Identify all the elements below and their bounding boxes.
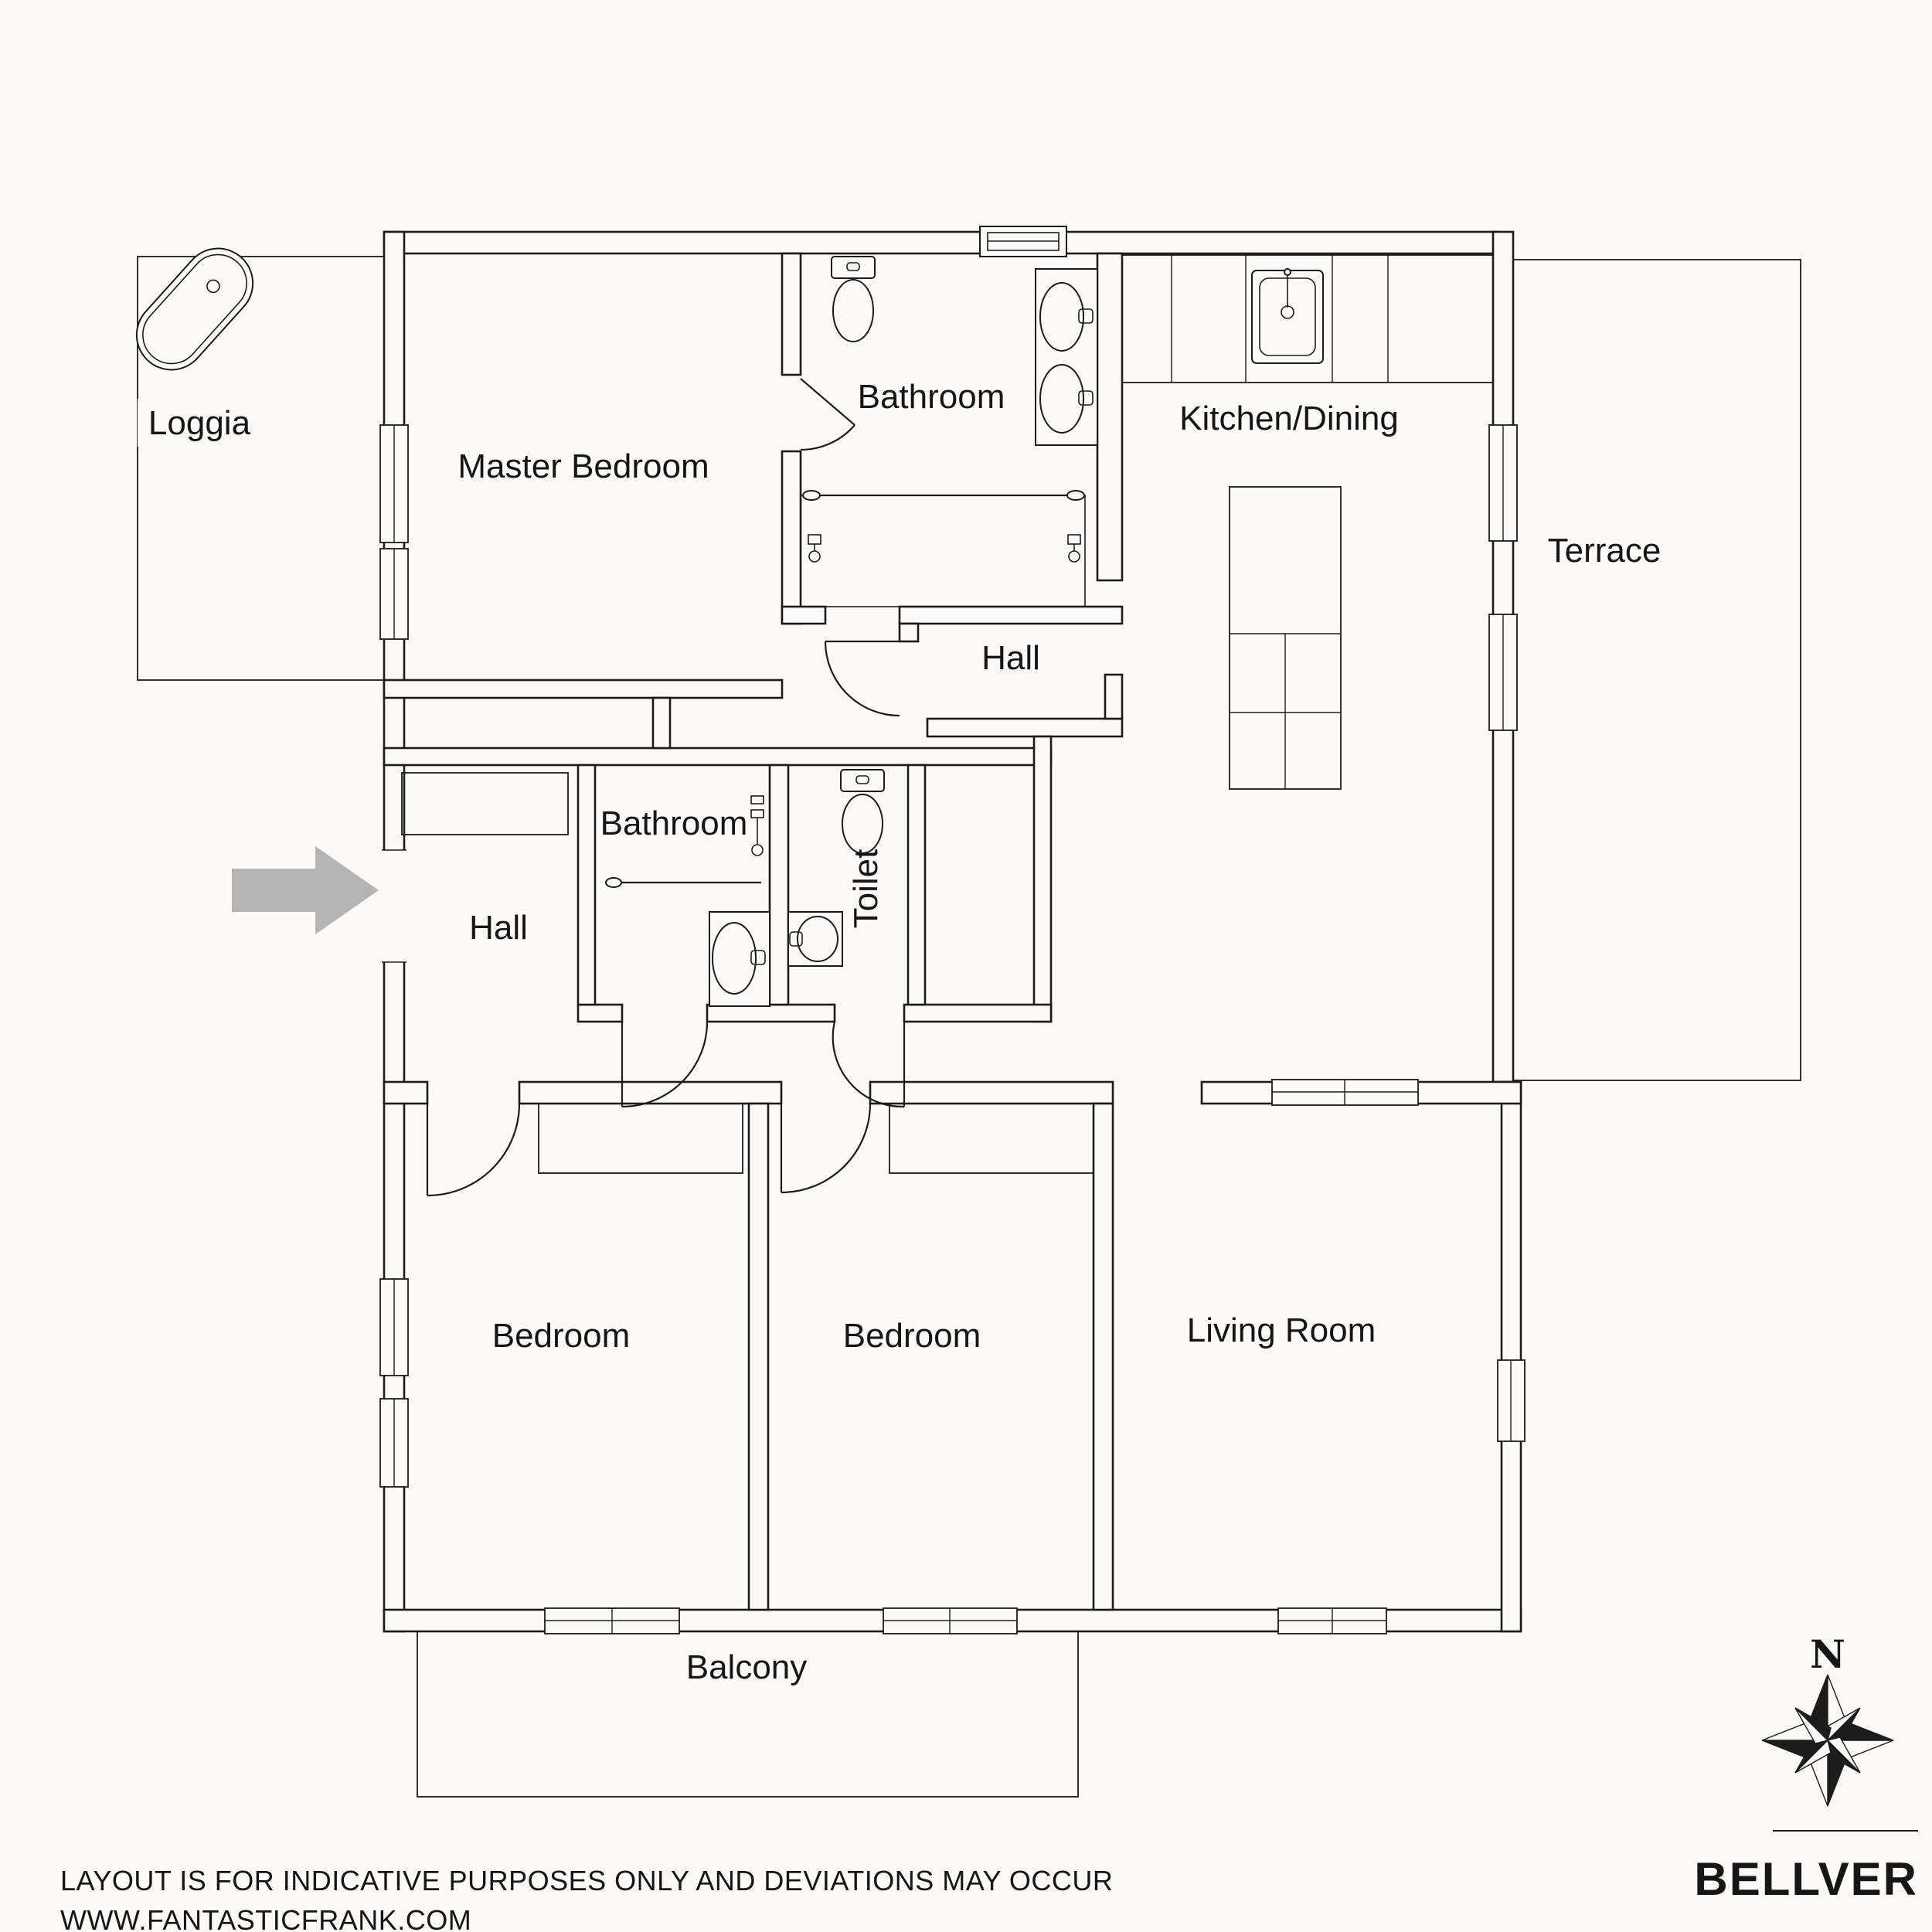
footer-website: WWW.FANTASTICFRANK.COM (60, 1904, 471, 1932)
wall-bath-toilet (770, 765, 788, 1005)
terrace-deck (1513, 260, 1801, 1080)
window-living-bottom (1278, 1608, 1386, 1634)
bedroom1-closet (539, 1104, 743, 1173)
room-label-living-room: Living Room (1187, 1311, 1376, 1349)
kitchen-island (1230, 487, 1341, 789)
wall-master-bath (782, 253, 801, 375)
bedroom2-closet (889, 1104, 1094, 1173)
window-left-lower-1 (380, 1279, 408, 1376)
wall-top (384, 232, 1499, 253)
room-label-bathroom-mid: Bathroom (600, 804, 748, 842)
wall-hall-bottom (927, 719, 1122, 736)
wall-master-bottom (384, 680, 782, 698)
window-loggia-1 (380, 425, 408, 543)
window-terrace-2 (1489, 614, 1517, 730)
wall-dining-separator (1034, 736, 1051, 1022)
window-loggia-2 (380, 549, 408, 639)
wall-midbath-left (578, 765, 595, 1005)
room-label-bedroom-left: Bedroom (492, 1317, 631, 1355)
sink-icon-wc (788, 912, 842, 966)
door-bedroom2 (781, 1104, 870, 1192)
room-label-kitchen-dining: Kitchen/Dining (1179, 400, 1399, 437)
wall-toilet-right (908, 765, 925, 1005)
footer-disclaimer: LAYOUT IS FOR INDICATIVE PURPOSES ONLY A… (60, 1865, 1113, 1896)
wall-bed2-living (1094, 1104, 1113, 1610)
room-label-toilet: Toilet (847, 849, 885, 929)
wall-bed1-bed2 (749, 1104, 768, 1610)
window-living-top (1272, 1080, 1418, 1105)
window-living-right (1498, 1360, 1525, 1441)
room-label-terrace: Terrace (1548, 532, 1662, 570)
sink-icon-mid (709, 912, 770, 1006)
shower-tub-icon (801, 491, 1085, 607)
floor-plan-svg: Loggia Master Bedroom Bathroom Kitchen/D… (0, 0, 1932, 1932)
room-label-bedroom-mid: Bedroom (843, 1317, 981, 1355)
room-label-bathroom-top: Bathroom (858, 378, 1005, 416)
toilet-icon-wc (841, 770, 884, 853)
room-label-loggia: Loggia (148, 404, 251, 442)
wall-bedrooms-top (384, 1082, 427, 1104)
kitchen-sink-icon (1252, 269, 1323, 363)
window-bedroom2 (883, 1608, 1017, 1634)
chimney-vent (980, 226, 1066, 257)
door-hall-upper (825, 641, 900, 716)
window-left-lower-2 (380, 1399, 408, 1487)
room-label-hall-entry: Hall (469, 909, 528, 947)
door-bedroom1 (427, 1104, 519, 1196)
compass-north-label: N (1810, 1631, 1845, 1677)
hall-closet (402, 773, 568, 835)
room-label-master-bedroom: Master Bedroom (457, 447, 709, 485)
wall-midrow-top (384, 748, 1051, 765)
double-sink-icon (1036, 269, 1097, 445)
room-label-balcony: Balcony (686, 1648, 808, 1686)
window-bedroom1 (545, 1608, 679, 1634)
toilet-icon-top (832, 257, 875, 342)
door-ensuite (801, 379, 855, 450)
wall-bath-kitchen (1097, 253, 1122, 580)
window-terrace-1 (1489, 425, 1517, 541)
entry-arrow-icon (232, 846, 379, 934)
wall-right-lower (1502, 1082, 1521, 1631)
room-label-hall-upper: Hall (981, 639, 1040, 677)
compass-rose-icon (1762, 1675, 1893, 1806)
brand-logo: BELLVER (1694, 1853, 1918, 1905)
